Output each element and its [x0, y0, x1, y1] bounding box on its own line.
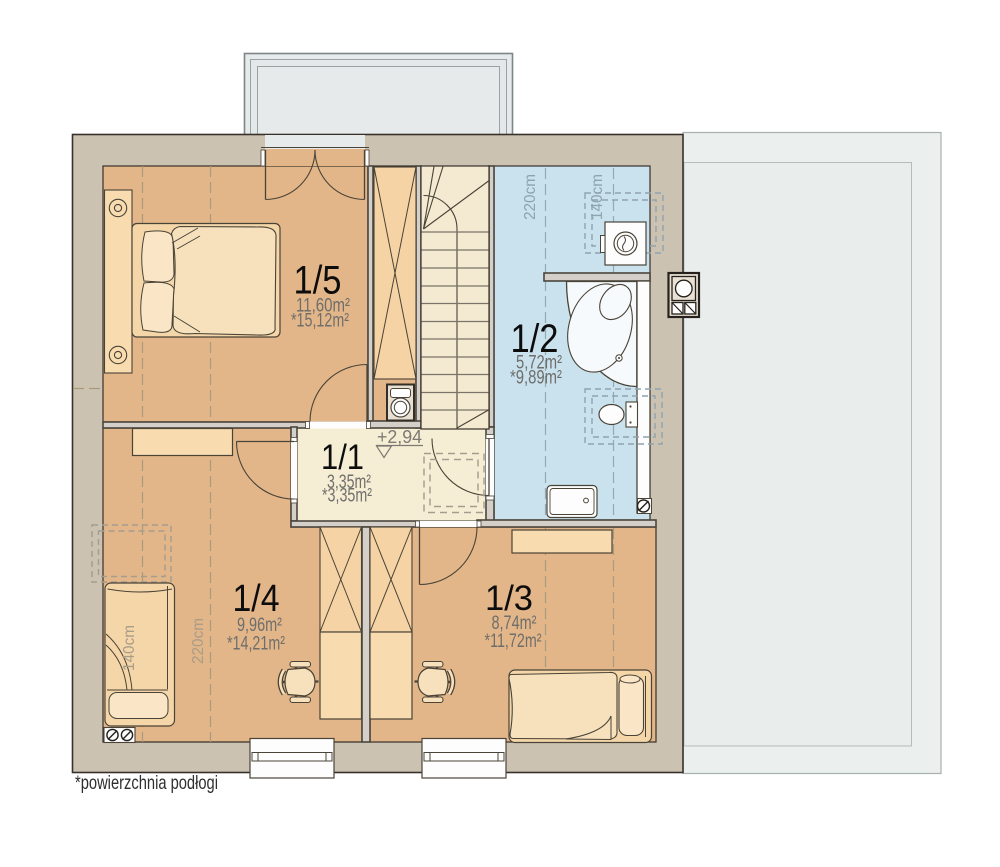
svg-text:1/4: 1/4	[233, 578, 280, 620]
svg-text:220cm: 220cm	[190, 618, 207, 664]
svg-text:*9,89m²: *9,89m²	[510, 368, 562, 389]
svg-text:*11,72m²: *11,72m²	[485, 631, 542, 652]
svg-text:*14,21m²: *14,21m²	[227, 634, 285, 655]
svg-text:140cm: 140cm	[121, 625, 138, 671]
svg-text:*15,12m²: *15,12m²	[291, 311, 349, 332]
svg-text:140cm: 140cm	[589, 174, 606, 220]
svg-text:220cm: 220cm	[522, 174, 539, 220]
svg-text:*3,35m²: *3,35m²	[322, 486, 372, 507]
svg-text:+2,94: +2,94	[377, 427, 422, 447]
svg-text:*powierzchnia podłogi: *powierzchnia podłogi	[75, 772, 218, 794]
